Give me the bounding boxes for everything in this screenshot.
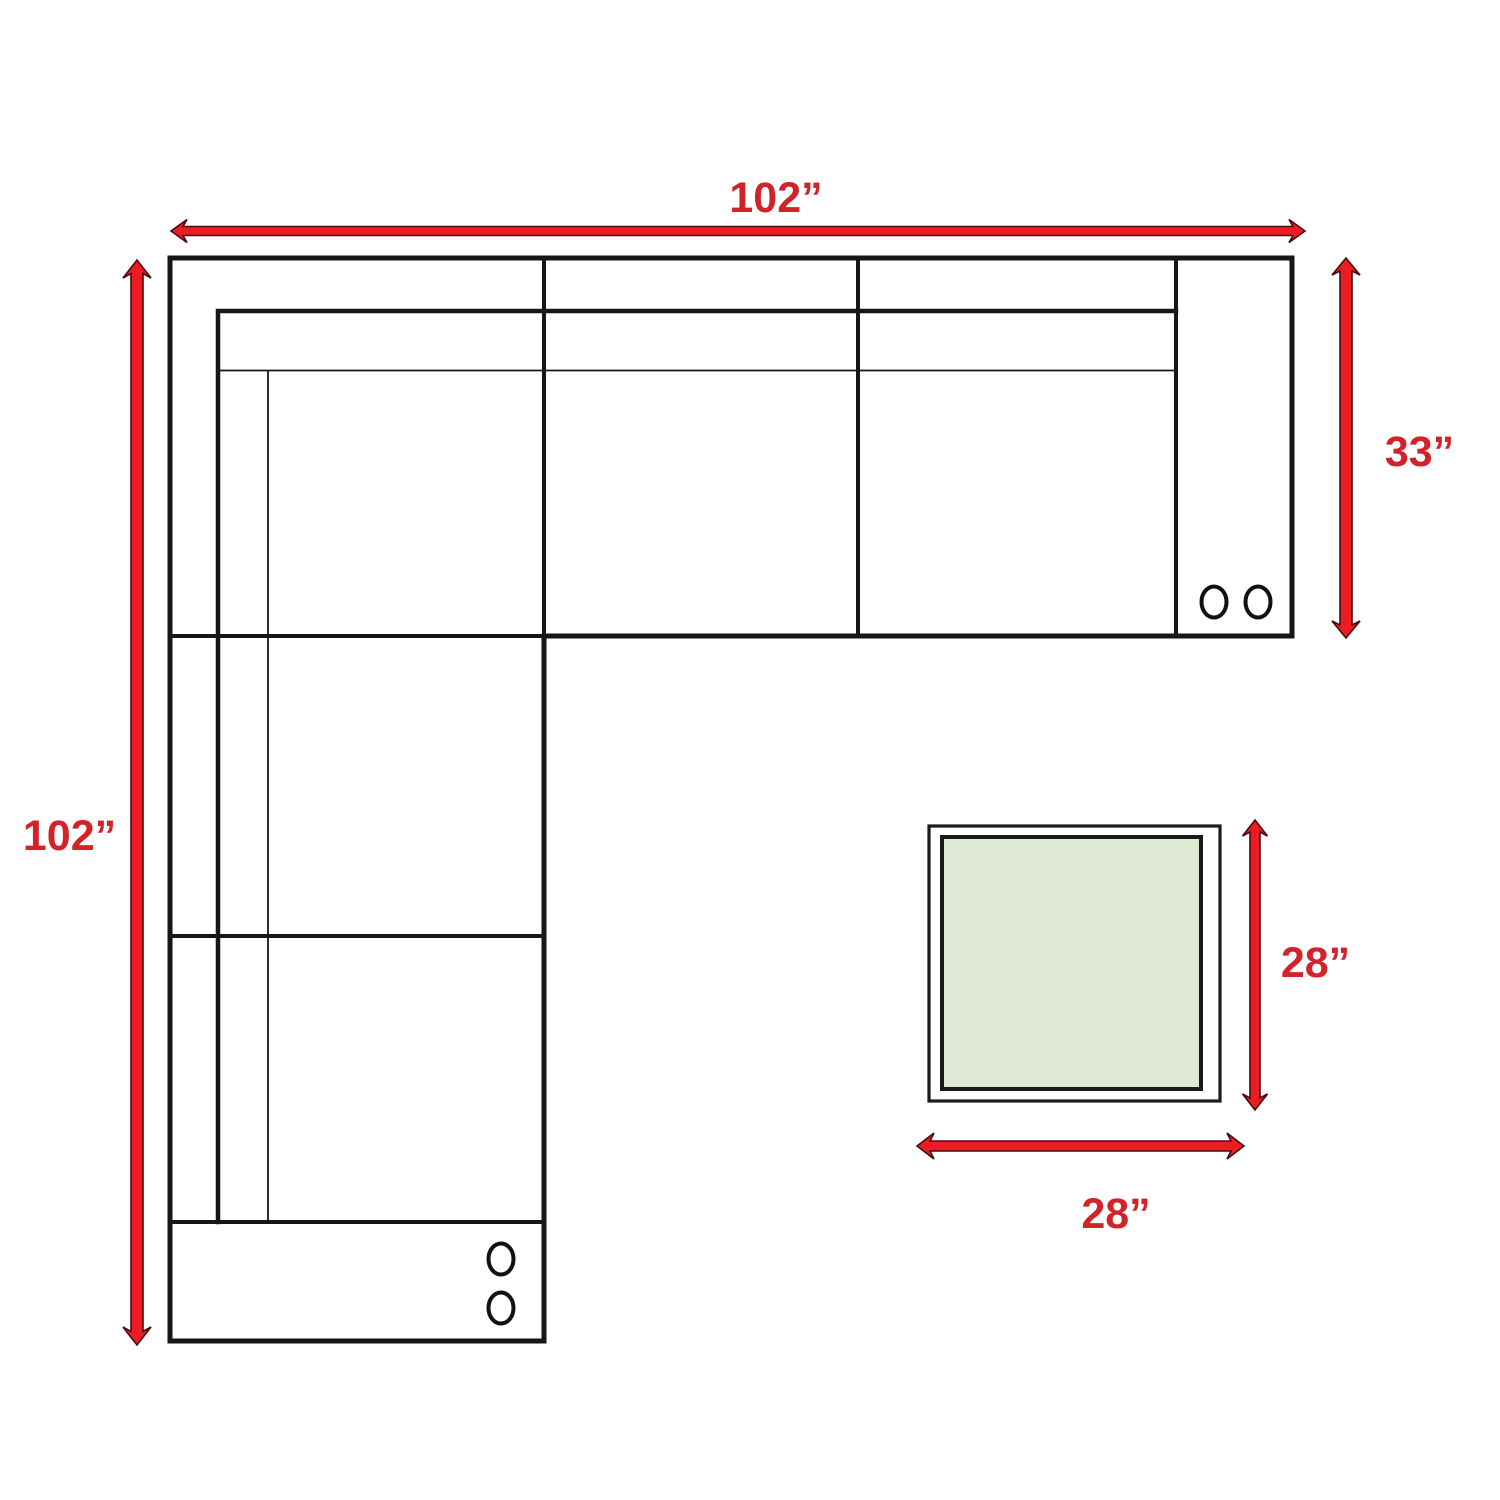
svg-text:28”: 28” xyxy=(1081,1190,1150,1238)
svg-text:102”: 102” xyxy=(23,812,116,860)
svg-text:28”: 28” xyxy=(1281,939,1350,987)
svg-text:33”: 33” xyxy=(1385,428,1454,476)
svg-text:102”: 102” xyxy=(729,174,822,222)
